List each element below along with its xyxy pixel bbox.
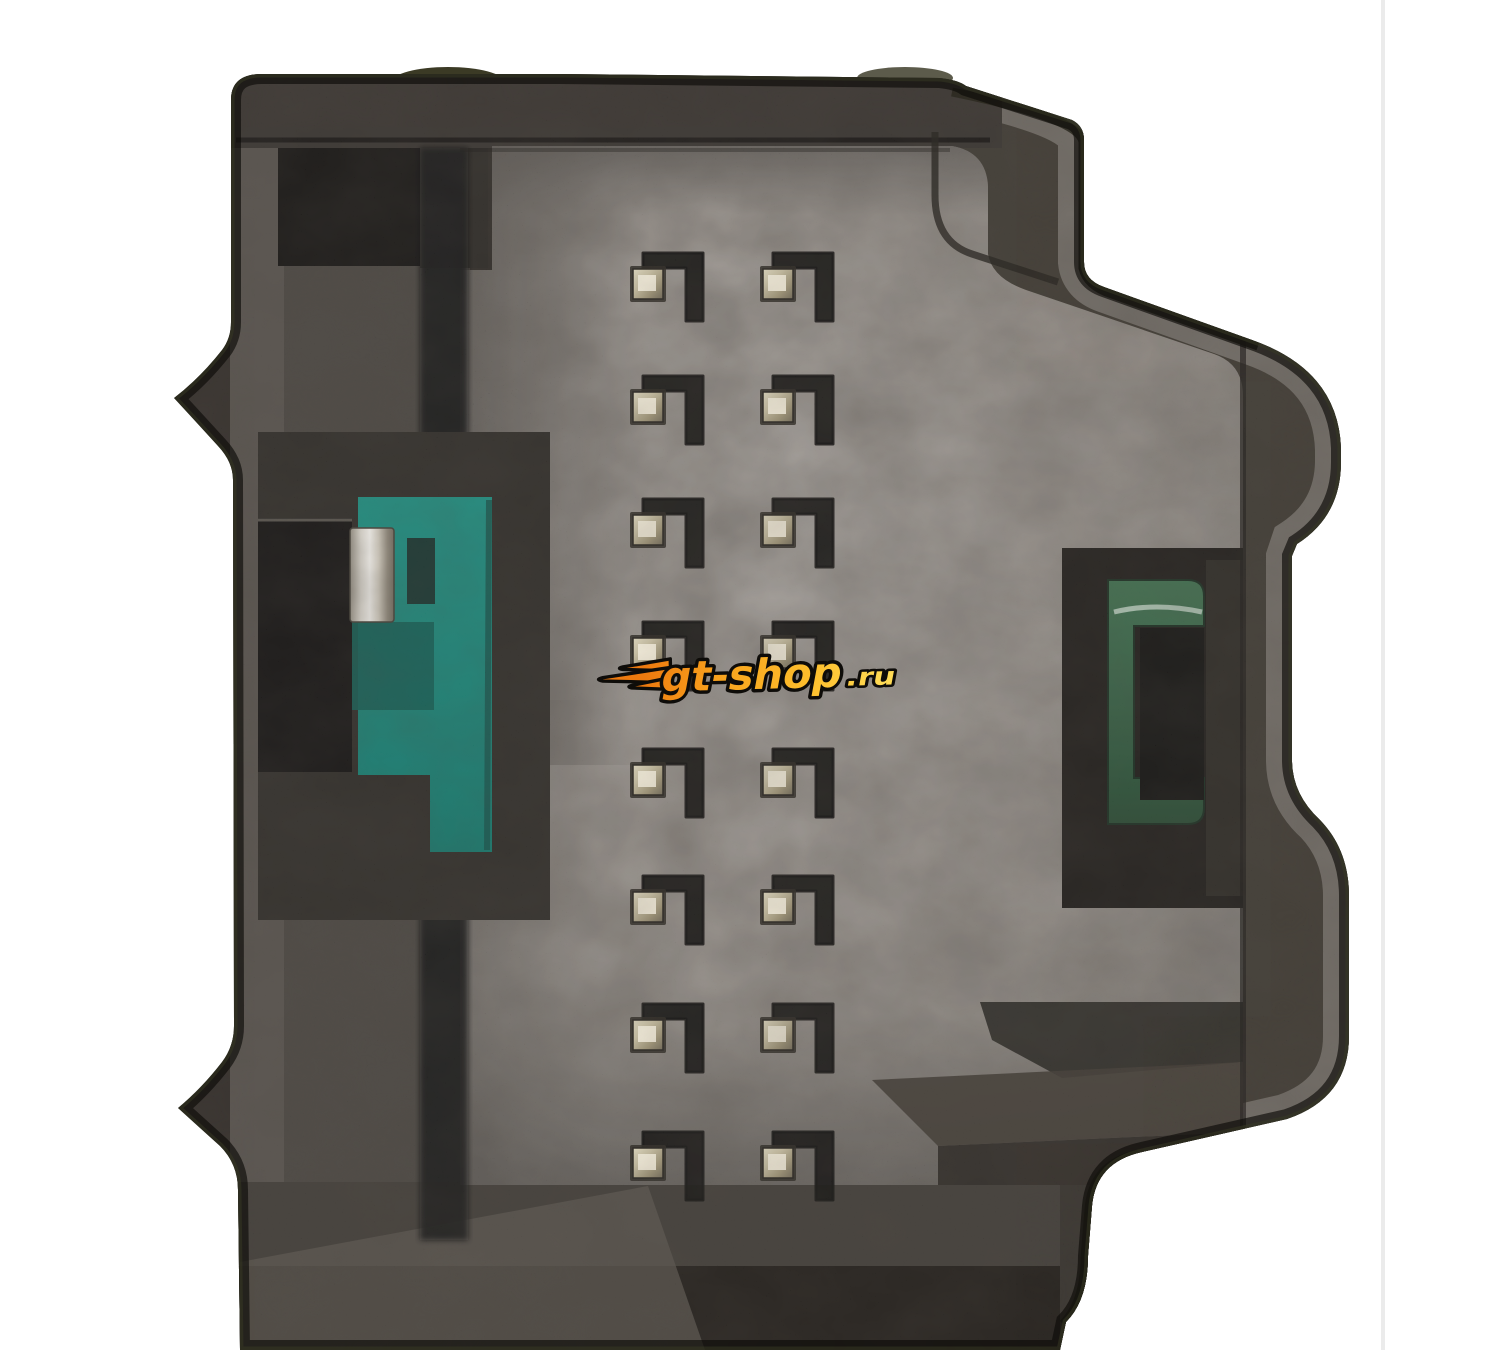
watermark-text-suffix: .ru (844, 662, 899, 692)
product-photo: gt-shop .ru (0, 0, 1500, 1350)
watermark-text-main: gt-shop (658, 648, 847, 701)
connector-photo-canvas: gt-shop .ru (0, 0, 1500, 1350)
